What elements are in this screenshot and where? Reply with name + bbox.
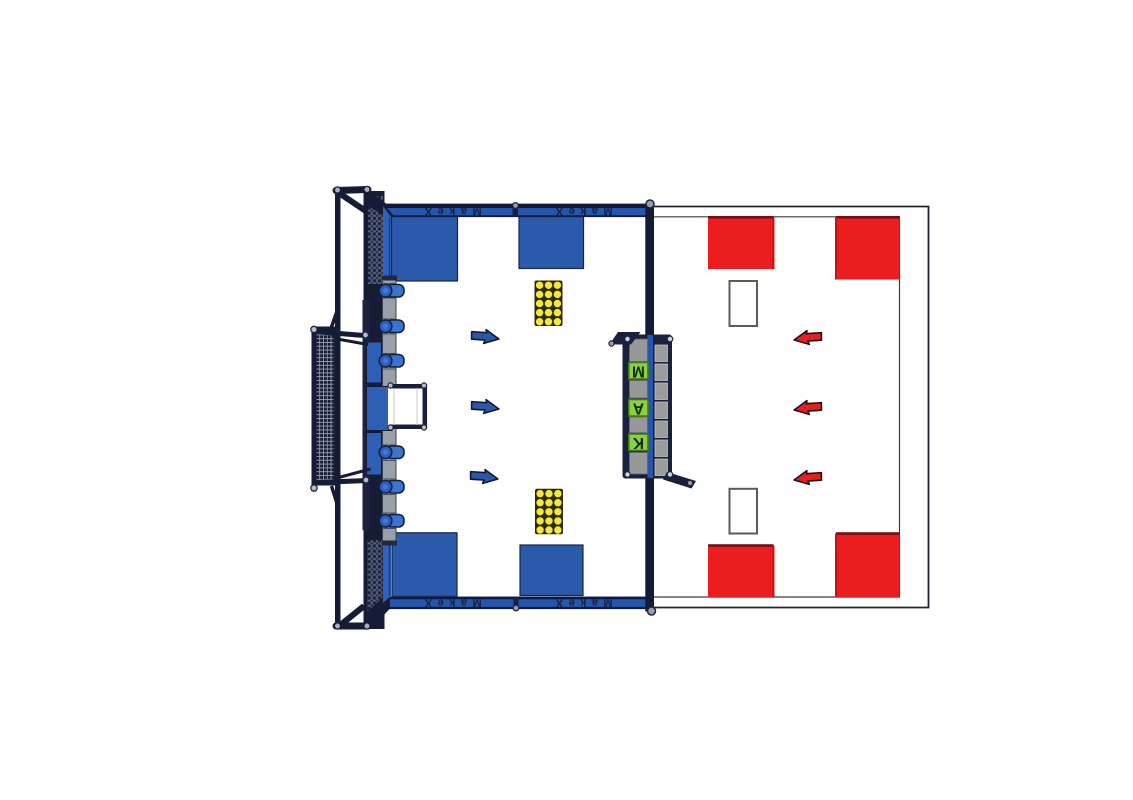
svg-text:MakeX: MakeX bbox=[550, 597, 612, 609]
svg-text:MakeX: MakeX bbox=[550, 205, 612, 217]
svg-text:MakeX: MakeX bbox=[419, 597, 481, 609]
svg-text:K: K bbox=[632, 434, 644, 451]
svg-text:MakeX: MakeX bbox=[419, 205, 481, 217]
svg-text:M: M bbox=[632, 362, 645, 379]
svg-text:A: A bbox=[633, 399, 644, 416]
